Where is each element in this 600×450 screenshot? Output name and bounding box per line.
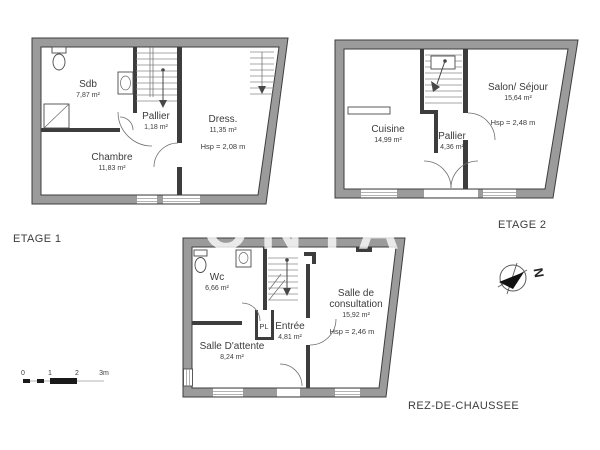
room-ceiling-dress: Hsp = 2,08 m <box>201 142 246 151</box>
room-area-entree: 4,81 m² <box>278 334 302 341</box>
scale-bar: 0 1 2 3m <box>21 370 109 384</box>
shower-icon <box>44 104 69 128</box>
etage1-partition-sdb-stairs <box>133 47 137 113</box>
toilet-tank <box>52 47 66 53</box>
rdc-partition-consult-upper <box>306 264 310 318</box>
etage2-partition-stairs-right <box>463 49 468 113</box>
pl-wall-bottom <box>255 337 274 340</box>
toilet-bowl <box>53 54 65 70</box>
scale-tick-1: 1 <box>48 370 52 377</box>
etage2-partition-step <box>420 110 438 114</box>
room-area-attente: 8,24 m² <box>220 354 244 361</box>
room-label-attente: Salle D'attente <box>200 341 265 352</box>
north-label: N <box>531 267 547 279</box>
room-area-wc: 6,66 m² <box>205 285 229 292</box>
floor-label-etage1: ETAGE 1 <box>13 233 61 245</box>
scale-tick-2: 2 <box>75 370 79 377</box>
floorplan-etage2: Cuisine 14,99 m² Pallier 4,36 m² Salon/ … <box>335 40 578 198</box>
window <box>483 190 516 198</box>
watermark: FONTA <box>156 202 468 258</box>
stair-arrow-start <box>161 68 165 72</box>
room-label-pallier: Pallier <box>142 111 170 122</box>
room-label-salon: Salon/ Séjour <box>488 82 549 93</box>
room-label-wc: Wc <box>210 272 224 283</box>
scale-solid-segment <box>50 378 77 384</box>
kitchen-counter-icon <box>348 107 390 114</box>
scale-dash <box>37 379 44 383</box>
floorplan-rdc: Wc 6,66 m² PL Entrée 4,81 m² Salle D'att… <box>183 238 405 397</box>
room-area-dress: 11,35 m² <box>209 127 237 134</box>
rdc-partition-consult-lower <box>306 345 310 388</box>
floorplan-canvas: Sdb 7,87 m² Pallier 1,18 m² Dress. 11,35… <box>0 0 600 450</box>
window <box>137 196 157 204</box>
window <box>213 389 243 397</box>
room-label-cuisine: Cuisine <box>371 124 405 135</box>
room-label-pallier2: Pallier <box>438 131 466 142</box>
floorplan-etage1: Sdb 7,87 m² Pallier 1,18 m² Dress. 11,35… <box>32 38 288 204</box>
toilet-bowl <box>195 258 206 273</box>
room-ceiling-consultation: Hsp = 2,46 m <box>330 327 375 336</box>
toilet-icon <box>52 47 66 70</box>
scale-tick-0: 0 <box>21 370 25 377</box>
room-area-chambre: 11,83 m² <box>98 165 126 172</box>
floor-label-rdc: REZ-DE-CHAUSSEE <box>408 400 519 412</box>
room-label-entree: Entrée <box>275 321 305 332</box>
room-label-consultation-1: Salle de <box>338 288 375 299</box>
pl-wall-left <box>255 310 258 340</box>
pl-wall-right <box>271 310 274 340</box>
scale-tick-3: 3m <box>99 370 109 377</box>
room-label-sdb: Sdb <box>79 79 97 90</box>
room-area-pallier: 1,18 m² <box>144 124 168 131</box>
room-area-sdb: 7,87 m² <box>76 92 100 99</box>
etage1-partition-sdb-chambre <box>41 128 120 132</box>
room-label-consultation-2: consultation <box>329 299 382 310</box>
room-label-dress: Dress. <box>209 114 238 125</box>
compass-north-icon: N <box>498 263 547 294</box>
floor-label-etage2: ETAGE 2 <box>498 219 546 231</box>
window <box>184 369 193 386</box>
room-label-chambre: Chambre <box>91 152 133 163</box>
window <box>361 190 397 198</box>
room-ceiling-salon: Hsp = 2,48 m <box>491 118 536 127</box>
room-area-consultation: 15,92 m² <box>342 312 370 319</box>
entry-door-opening <box>277 389 300 397</box>
room-area-cuisine: 14,99 m² <box>374 137 402 144</box>
sink-icon <box>118 72 133 94</box>
room-area-pallier2: 4,36 m² <box>440 144 464 151</box>
rdc-partition-wc-attente <box>192 321 242 325</box>
etage1-partition-dress-lower <box>177 167 182 195</box>
room-area-salon: 15,64 m² <box>504 95 532 102</box>
window <box>335 389 360 397</box>
room-label-pl: PL <box>259 322 268 331</box>
etage1-partition-dress-upper <box>177 47 182 143</box>
etage2-partition-stairs-left <box>420 49 424 110</box>
door-opening <box>424 190 478 198</box>
scale-dash <box>23 379 30 383</box>
